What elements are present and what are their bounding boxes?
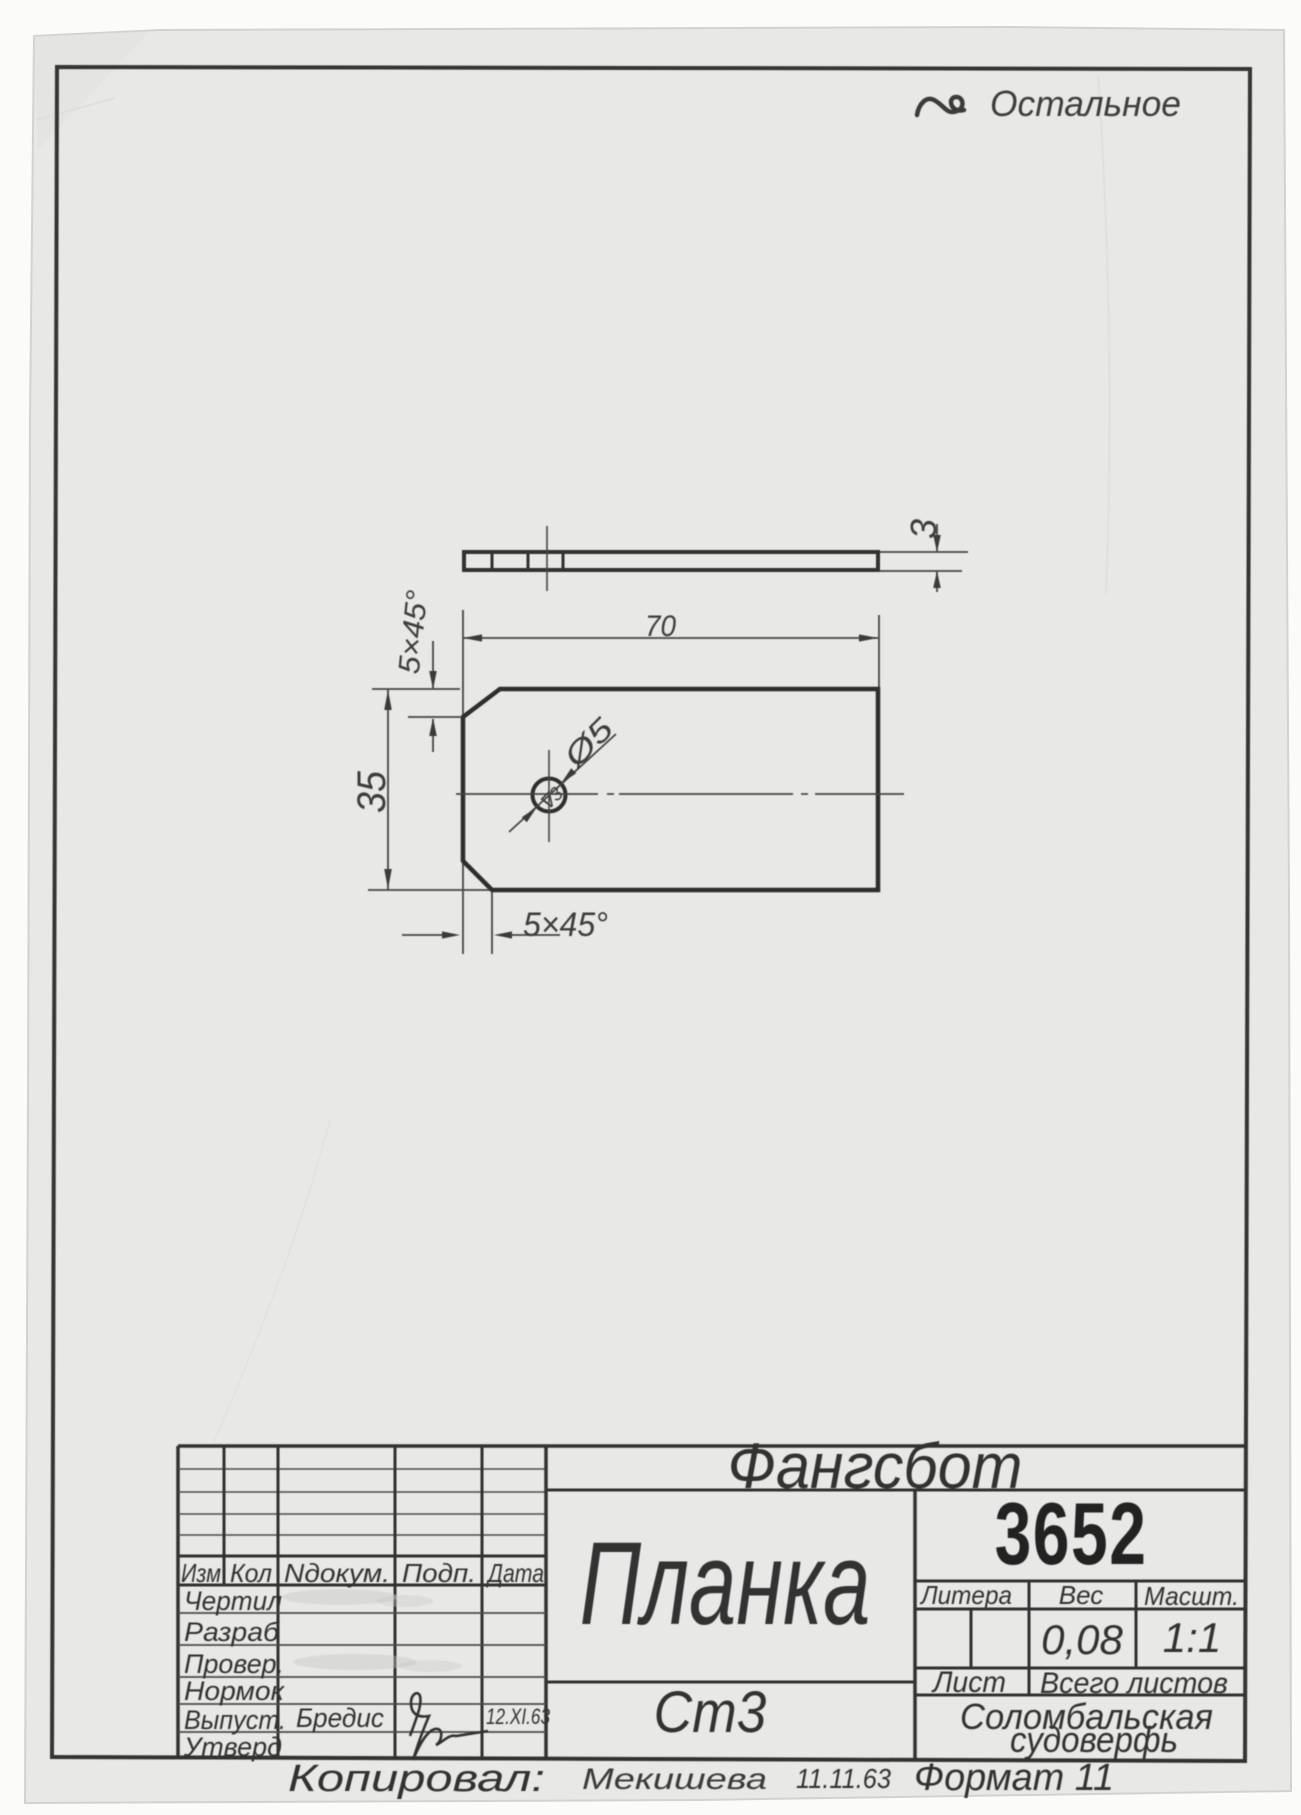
svg-text:Подп.: Подп. [402, 1558, 476, 1588]
svg-text:Кол: Кол [230, 1558, 272, 1588]
svg-text:Бредис: Бредис [296, 1703, 384, 1733]
svg-text:Nдокум.: Nдокум. [284, 1558, 390, 1588]
svg-text:5×45°: 5×45° [523, 906, 608, 944]
svg-text:Выпуст.: Выпуст. [184, 1705, 286, 1735]
svg-text:Провер.: Провер. [184, 1649, 284, 1679]
svg-text:Чертил: Чертил [184, 1586, 282, 1616]
svg-text:Планка: Планка [580, 1517, 871, 1649]
svg-text:Мекишева: Мекишева [582, 1763, 767, 1796]
svg-text:Вес: Вес [1059, 1580, 1104, 1610]
svg-text:1:1: 1:1 [1163, 1614, 1221, 1661]
svg-text:Масшт.: Масшт. [1144, 1581, 1239, 1611]
svg-text:Остальное: Остальное [990, 83, 1181, 124]
svg-text:Формат 11: Формат 11 [914, 1757, 1114, 1799]
svg-text:Изм: Изм [181, 1558, 221, 1588]
svg-text:Дата: Дата [486, 1558, 544, 1588]
svg-text:Ст3: Ст3 [654, 1680, 767, 1745]
svg-text:судоверфь: судоверфь [1010, 1719, 1178, 1760]
svg-text:3652: 3652 [995, 1486, 1148, 1583]
svg-text:11.11.63: 11.11.63 [796, 1763, 891, 1794]
svg-text:Литера: Литера [919, 1580, 1012, 1610]
svg-text:Фангсбот: Фангсбот [728, 1430, 1023, 1502]
svg-text:0,08: 0,08 [1041, 1616, 1123, 1663]
svg-text:Лист: Лист [931, 1666, 1006, 1699]
svg-text:12.XI.63: 12.XI.63 [486, 1704, 551, 1729]
svg-text:70: 70 [645, 610, 676, 643]
svg-text:Нормок: Нормок [184, 1676, 285, 1706]
svg-text:3: 3 [903, 519, 944, 539]
svg-text:Копировал:: Копировал: [288, 1758, 545, 1800]
svg-text:Разраб: Разраб [184, 1617, 280, 1647]
svg-text:35: 35 [350, 770, 394, 813]
